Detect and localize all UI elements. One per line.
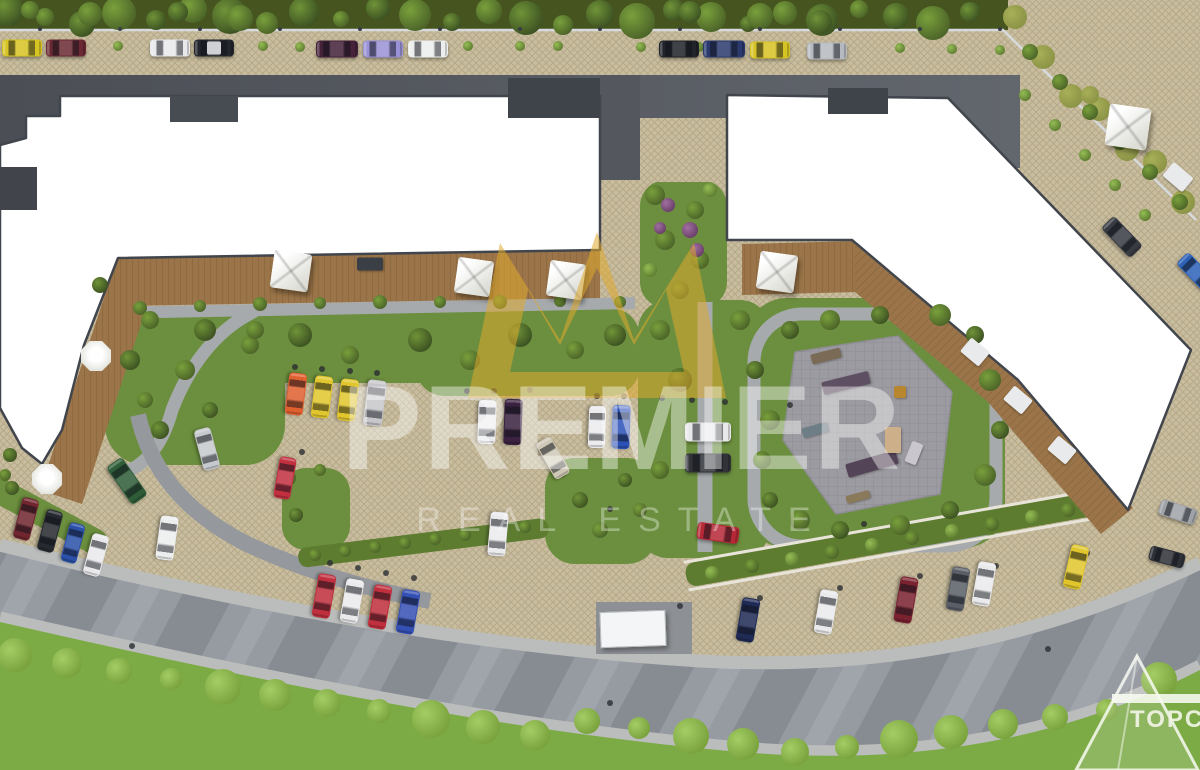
truck-pad [596, 602, 692, 654]
site-plan-base [0, 0, 1200, 770]
between-buildings-garden [640, 180, 727, 308]
top-hedge [0, 0, 1008, 30]
site-plan-rendering: PREMIER REAL ESTATE TOPCH [0, 0, 1200, 770]
